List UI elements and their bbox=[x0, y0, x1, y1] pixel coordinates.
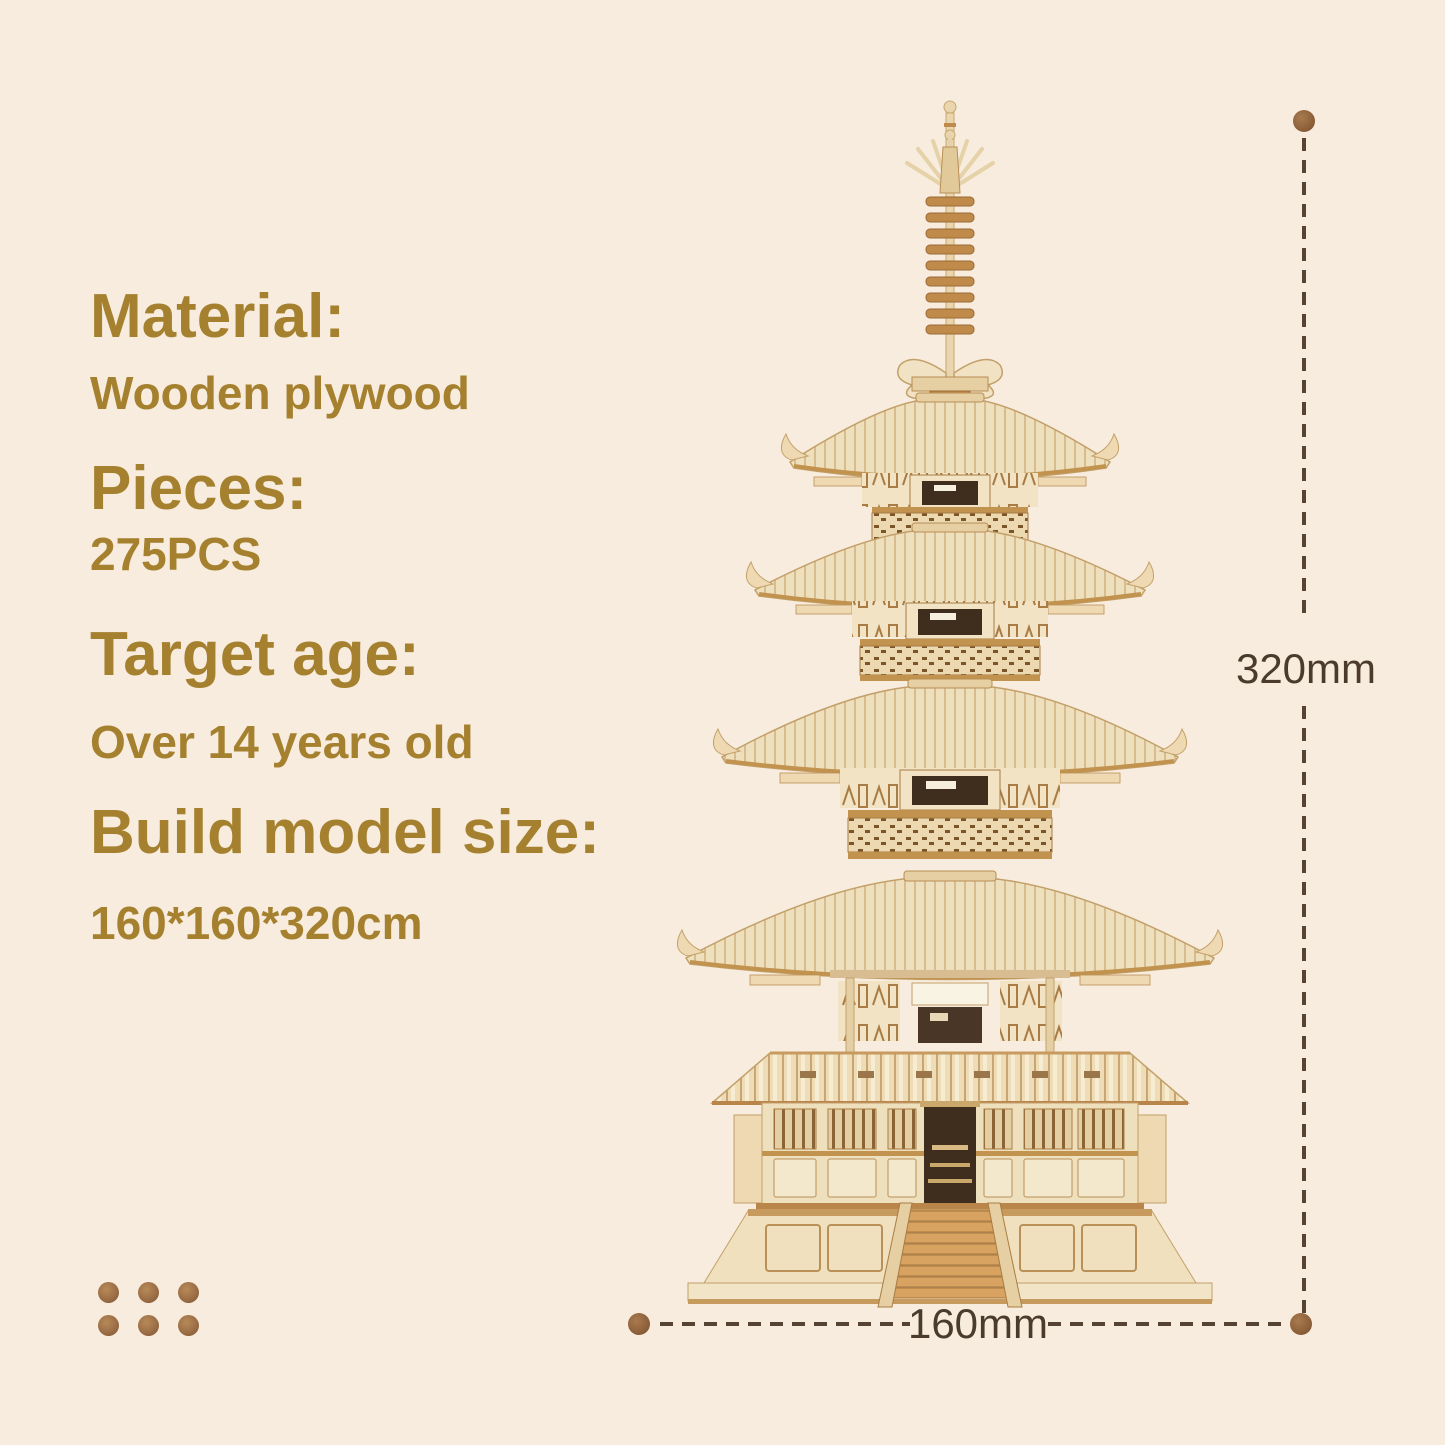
pagoda-balustrade-4 bbox=[860, 639, 1040, 681]
width-dimension-label: 160mm bbox=[908, 1303, 1048, 1345]
spec-value-pieces: 275PCS bbox=[90, 531, 261, 577]
spec-label-build-size: Build model size: bbox=[90, 802, 600, 864]
pagoda-ground-floor bbox=[734, 1101, 1166, 1211]
pagoda-spire bbox=[898, 101, 1003, 401]
ornament-dot bbox=[98, 1282, 119, 1303]
height-dashed-line-lower bbox=[1302, 706, 1306, 1318]
pagoda-roof-3 bbox=[713, 679, 1186, 859]
pagoda-stairs bbox=[878, 1203, 1022, 1307]
pagoda-roof-4 bbox=[746, 523, 1153, 681]
spec-label-pieces: Pieces: bbox=[90, 458, 307, 520]
height-dashed-line-upper bbox=[1302, 138, 1306, 616]
spec-label-material: Material: bbox=[90, 286, 345, 348]
width-dimension-right-dot bbox=[1290, 1313, 1312, 1335]
spec-label-target-age: Target age: bbox=[90, 624, 420, 686]
spec-value-target-age: Over 14 years old bbox=[90, 719, 474, 765]
pagoda-balustrade-3 bbox=[848, 810, 1052, 859]
pagoda-roof-2 bbox=[677, 871, 1222, 1056]
width-dashed-line-left bbox=[660, 1322, 910, 1326]
height-dimension-label: 320mm bbox=[1236, 648, 1376, 690]
ornament-dot bbox=[138, 1315, 159, 1336]
pagoda-model-photo bbox=[600, 55, 1300, 1315]
spec-value-build-size: 160*160*320cm bbox=[90, 900, 423, 946]
pagoda-roof-1 bbox=[712, 1053, 1188, 1103]
ornament-dot bbox=[138, 1282, 159, 1303]
width-dimension-left-dot bbox=[628, 1313, 650, 1335]
pagoda-doorway bbox=[924, 1107, 976, 1203]
ornament-dot bbox=[178, 1315, 199, 1336]
height-dimension-endpoint-dot bbox=[1293, 110, 1315, 132]
width-dashed-line-right bbox=[1048, 1322, 1290, 1326]
product-infographic: Material: Wooden plywood Pieces: 275PCS … bbox=[0, 0, 1445, 1445]
spec-value-material: Wooden plywood bbox=[90, 370, 470, 416]
ornament-dot bbox=[98, 1315, 119, 1336]
ornament-dot bbox=[178, 1282, 199, 1303]
